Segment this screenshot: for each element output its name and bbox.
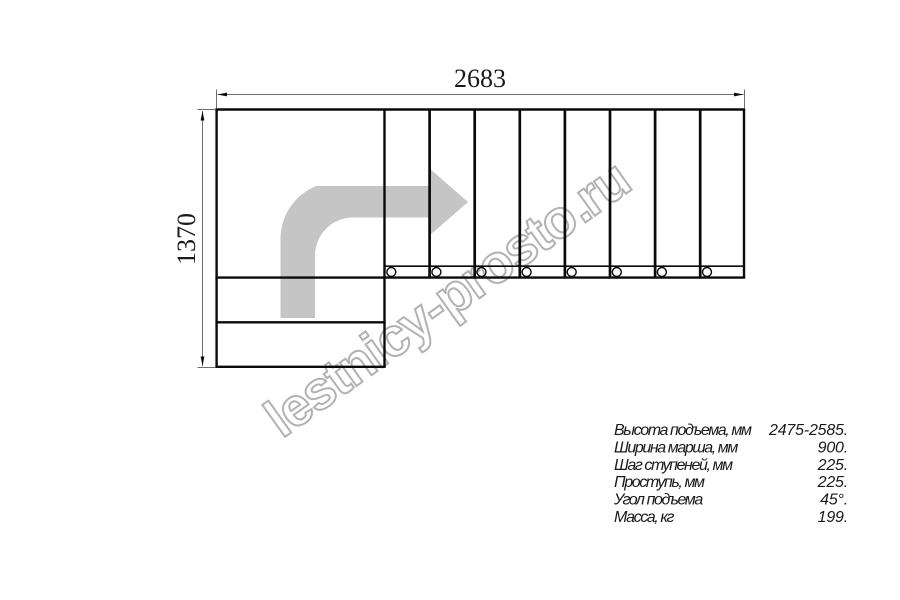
svg-text:Шаг ступеней, мм: Шаг ступеней, мм [614,457,733,474]
svg-text:Угол подъема: Угол подъема [613,492,703,509]
svg-text:900.: 900. [818,439,848,456]
svg-text:225.: 225. [817,457,848,474]
svg-text:Высота подъема, мм: Высота подъема, мм [614,422,752,439]
svg-text:225.: 225. [817,474,848,491]
svg-text:45°.: 45°. [820,492,848,509]
svg-text:199.: 199. [818,509,848,526]
svg-text:Масса, кг: Масса, кг [614,509,675,526]
svg-text:2475-2585.: 2475-2585. [768,422,848,439]
svg-text:2683: 2683 [454,64,506,93]
svg-text:1370: 1370 [172,213,201,265]
svg-text:Проступь, мм: Проступь, мм [614,474,705,491]
svg-text:Ширина марша, мм: Ширина марша, мм [614,439,738,456]
